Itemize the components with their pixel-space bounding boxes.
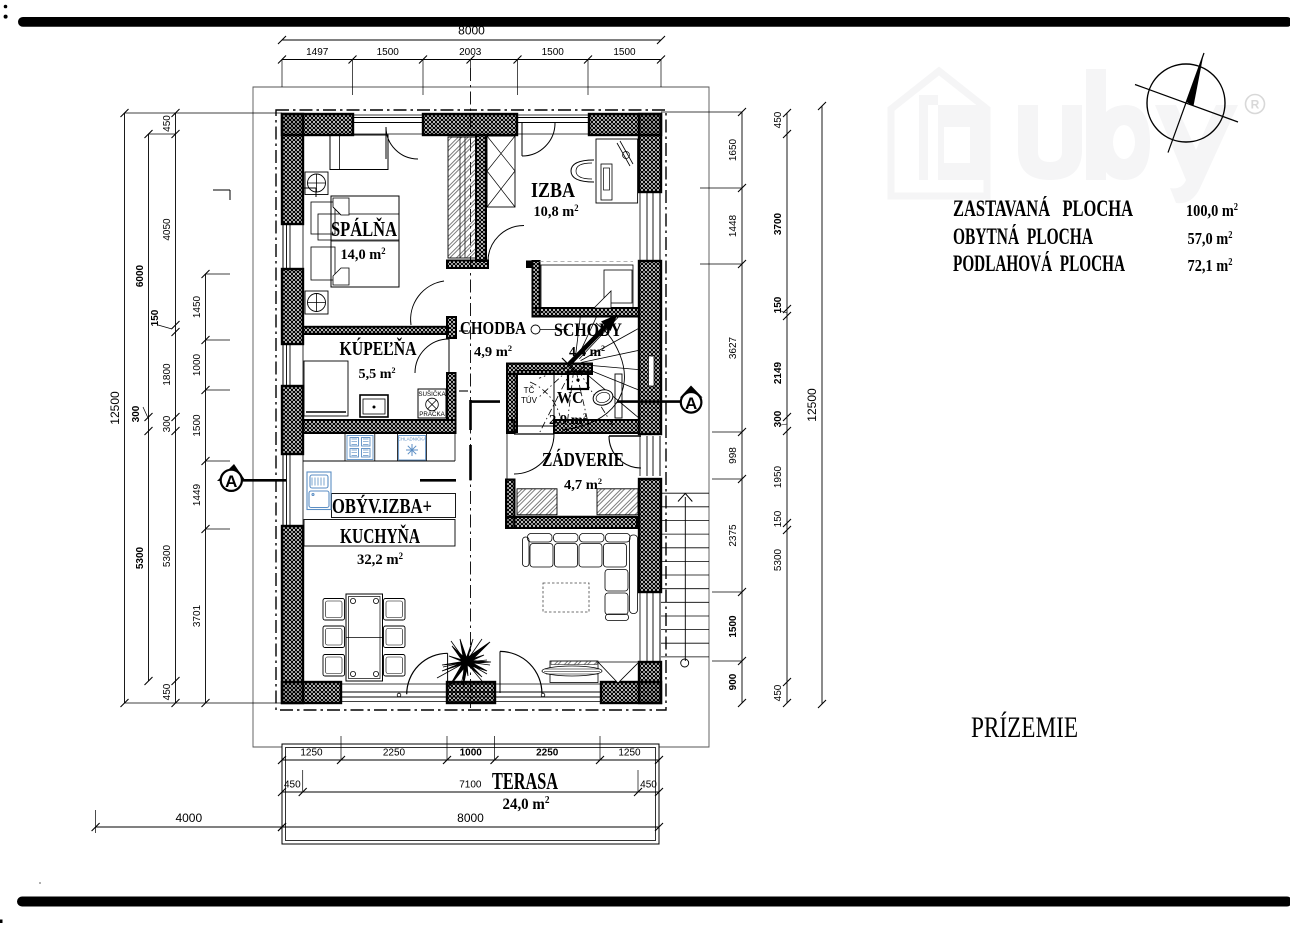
svg-text:1250: 1250 <box>618 748 641 759</box>
svg-text:IZBA: IZBA <box>531 178 576 202</box>
svg-text:1000: 1000 <box>192 353 203 376</box>
svg-text:4050: 4050 <box>162 218 173 241</box>
svg-text:A: A <box>225 472 237 491</box>
svg-text:CHLADNIČKA: CHLADNIČKA <box>398 437 426 442</box>
svg-text:R: R <box>1251 98 1260 112</box>
svg-text:1800: 1800 <box>162 363 173 386</box>
svg-text:1450: 1450 <box>192 295 203 318</box>
svg-text:1449: 1449 <box>192 483 203 506</box>
svg-text:KÚPEĽŇA: KÚPEĽŇA <box>340 336 417 360</box>
svg-text:1500: 1500 <box>613 47 636 58</box>
svg-text:2250: 2250 <box>383 748 406 759</box>
svg-text:2149: 2149 <box>773 361 784 384</box>
svg-text:OBYTNÁ PLOCHA: OBYTNÁ PLOCHA <box>953 224 1093 249</box>
svg-text:PRÁČKA: PRÁČKA <box>419 411 445 418</box>
svg-text:1500: 1500 <box>192 414 203 437</box>
svg-text:3700: 3700 <box>773 212 784 235</box>
svg-text:TERASA: TERASA <box>492 769 558 795</box>
svg-text:CHODBA: CHODBA <box>460 318 526 338</box>
svg-text:4,4 m2: 4,4 m2 <box>569 344 605 360</box>
svg-text:WC: WC <box>557 388 583 407</box>
svg-text:57,0 m2: 57,0 m2 <box>1188 229 1233 248</box>
svg-text:4,7 m2: 4,7 m2 <box>564 477 602 493</box>
svg-text:1448: 1448 <box>728 214 739 237</box>
svg-text:150: 150 <box>773 510 784 527</box>
svg-text:5300: 5300 <box>135 546 146 569</box>
svg-text:2250: 2250 <box>536 748 559 759</box>
svg-text:72,1 m2: 72,1 m2 <box>1188 256 1233 275</box>
svg-text:8000: 8000 <box>457 811 484 825</box>
svg-text:150: 150 <box>150 309 161 326</box>
svg-text:1500: 1500 <box>377 47 400 58</box>
svg-text:10,8 m2: 10,8 m2 <box>534 203 579 220</box>
svg-text:4,9 m2: 4,9 m2 <box>474 344 512 360</box>
svg-text:A: A <box>685 394 697 413</box>
svg-text:5300: 5300 <box>773 548 784 571</box>
svg-text:TČ: TČ <box>524 386 535 395</box>
svg-text:4000: 4000 <box>175 811 202 825</box>
svg-text:1500: 1500 <box>542 47 565 58</box>
svg-text:1250: 1250 <box>300 748 323 759</box>
svg-text:1500: 1500 <box>728 615 739 638</box>
svg-text:7100: 7100 <box>459 780 482 791</box>
svg-text:300: 300 <box>162 415 173 432</box>
svg-text:OBÝV.IZBA+: OBÝV.IZBA+ <box>332 494 432 518</box>
svg-text:1950: 1950 <box>773 465 784 488</box>
svg-text:450: 450 <box>640 780 657 791</box>
svg-text:3701: 3701 <box>192 604 203 627</box>
svg-text:SUŠIČKA: SUŠIČKA <box>418 391 446 398</box>
svg-text:PRÍZEMIE: PRÍZEMIE <box>971 711 1078 744</box>
svg-text:8000: 8000 <box>458 24 485 38</box>
svg-text:450: 450 <box>284 780 301 791</box>
svg-text:6000: 6000 <box>135 264 146 287</box>
svg-text:150: 150 <box>773 296 784 313</box>
svg-text:2375: 2375 <box>728 524 739 547</box>
svg-text:2003: 2003 <box>459 47 482 58</box>
svg-text:450: 450 <box>162 115 173 132</box>
svg-text:900: 900 <box>728 673 739 690</box>
svg-text:1650: 1650 <box>728 138 739 161</box>
svg-text:2,9 m2: 2,9 m2 <box>549 412 587 428</box>
svg-text:KUCHYŇA: KUCHYŇA <box>340 524 421 548</box>
svg-text:998: 998 <box>728 447 739 464</box>
svg-text:1000: 1000 <box>460 748 483 759</box>
svg-text:24,0 m2: 24,0 m2 <box>503 795 550 813</box>
svg-text:32,2 m2: 32,2 m2 <box>357 551 403 568</box>
svg-text:300: 300 <box>131 405 142 422</box>
svg-text:450: 450 <box>773 111 784 128</box>
svg-text:12500: 12500 <box>108 391 122 425</box>
svg-text:5,5 m2: 5,5 m2 <box>359 366 396 382</box>
svg-text:450: 450 <box>162 683 173 700</box>
svg-text:1497: 1497 <box>306 47 329 58</box>
svg-text:12500: 12500 <box>805 388 819 422</box>
svg-text:450: 450 <box>773 684 784 701</box>
svg-text:3627: 3627 <box>728 336 739 359</box>
svg-text:ZÁDVERIE: ZÁDVERIE <box>542 448 624 471</box>
svg-text:TÚV: TÚV <box>521 396 538 405</box>
svg-text:SPÁLŇA: SPÁLŇA <box>331 217 398 241</box>
svg-text:PODLAHOVÁ PLOCHA: PODLAHOVÁ PLOCHA <box>953 251 1125 276</box>
svg-text:SCHODY: SCHODY <box>554 320 622 341</box>
svg-text:100,0 m2: 100,0 m2 <box>1186 201 1238 220</box>
svg-text:14,0 m2: 14,0 m2 <box>341 246 386 263</box>
svg-text:ZASTAVANÁ PLOCHA: ZASTAVANÁ PLOCHA <box>953 196 1133 221</box>
svg-text:5300: 5300 <box>162 544 173 567</box>
